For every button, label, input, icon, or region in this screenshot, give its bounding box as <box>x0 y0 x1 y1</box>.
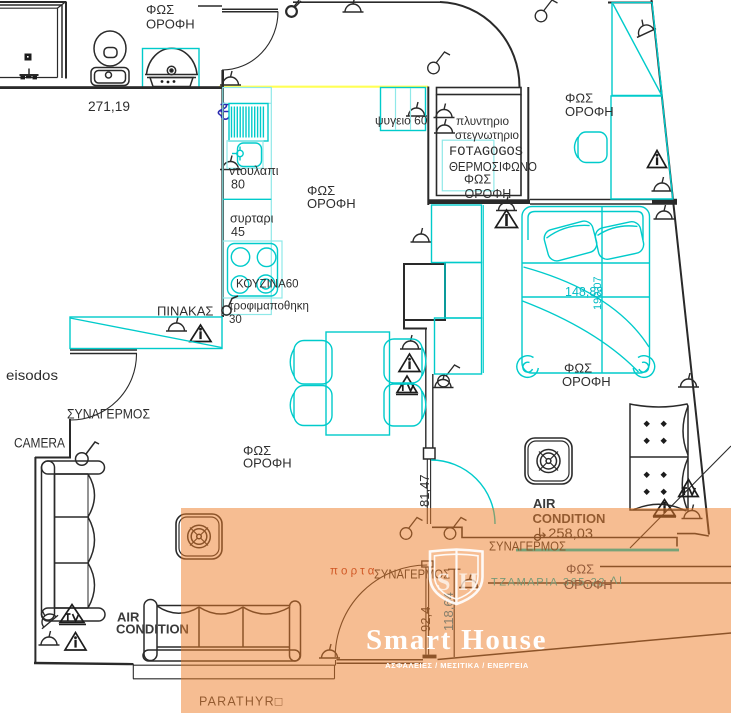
svg-text:CAMERA: CAMERA <box>14 436 65 451</box>
svg-text:ψυγειο 60: ψυγειο 60 <box>375 114 428 128</box>
svg-text:στεγνωτηριο: στεγνωτηριο <box>455 128 519 142</box>
svg-text:271,19: 271,19 <box>88 98 130 114</box>
svg-text:ΚΟΥΖΙΝΑ60: ΚΟΥΖΙΝΑ60 <box>236 279 299 291</box>
svg-text:Smart House: Smart House <box>366 624 547 656</box>
svg-text:πλυντηριο: πλυντηριο <box>456 114 509 128</box>
svg-text:81,47: 81,47 <box>417 474 432 507</box>
svg-text:CONDITION: CONDITION <box>116 622 189 637</box>
svg-text:eisodos: eisodos <box>6 367 58 383</box>
svg-text:ΣΥΝΑΓΕΡΜΟΣ: ΣΥΝΑΓΕΡΜΟΣ <box>67 407 150 422</box>
svg-text:ΟΡΟΦΗ: ΟΡΟΦΗ <box>562 374 611 389</box>
svg-text:ΟΡΟΦΗ: ΟΡΟΦΗ <box>146 17 195 32</box>
svg-text:ΑΣΦΑΛΕΙΕΣ / ΜΕΣΙΤΙΚΑ / ΕΝΕΡΓΕΙ: ΑΣΦΑΛΕΙΕΣ / ΜΕΣΙΤΙΚΑ / ΕΝΕΡΓΕΙΑ <box>385 661 529 670</box>
svg-text:80: 80 <box>231 178 245 192</box>
svg-text:ΟΡΟΦΗ: ΟΡΟΦΗ <box>243 456 292 471</box>
svg-text:FOTAGOGOS: FOTAGOGOS <box>449 144 523 159</box>
svg-text:ΟΡΟΦΗ: ΟΡΟΦΗ <box>465 187 512 201</box>
svg-text:συρταρι: συρταρι <box>230 212 274 226</box>
svg-text:ΘΕΡΜΟΣΙΦΩΝΟ: ΘΕΡΜΟΣΙΦΩΝΟ <box>449 160 537 174</box>
svg-text:H: H <box>459 569 479 596</box>
svg-text:ΦΩΣ: ΦΩΣ <box>464 173 491 187</box>
svg-text:S: S <box>437 569 451 596</box>
svg-text:45: 45 <box>231 225 245 239</box>
svg-text:190,07: 190,07 <box>592 276 604 310</box>
svg-text:ΠΙΝΑΚΑΣ: ΠΙΝΑΚΑΣ <box>157 304 213 319</box>
svg-text:τροφιμαποθηκη: τροφιμαποθηκη <box>229 301 309 313</box>
svg-text:ΟΡΟΦΗ: ΟΡΟΦΗ <box>565 104 614 119</box>
svg-text:ντουλαπι: ντουλαπι <box>229 164 279 178</box>
svg-text:ΦΩΣ: ΦΩΣ <box>146 2 174 17</box>
svg-text:ΟΡΟΦΗ: ΟΡΟΦΗ <box>307 196 356 211</box>
svg-text:30: 30 <box>229 314 242 326</box>
